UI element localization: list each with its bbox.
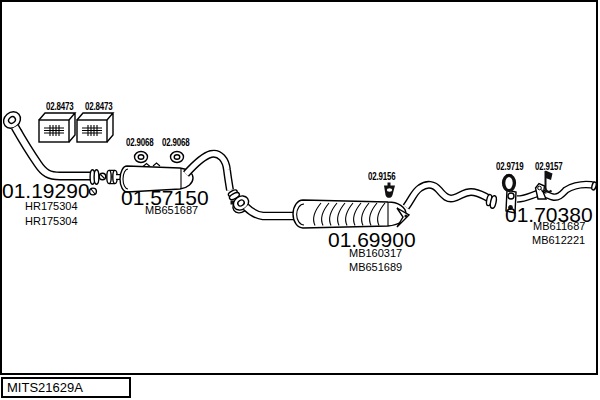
exhaust-system-diagram (0, 0, 600, 400)
flange-joint-drawing (90, 170, 124, 195)
gasket-ring-icon (135, 152, 148, 163)
part-ref-label: HR175304 (25, 201, 78, 212)
fitting-label: 02.8473 (85, 101, 113, 112)
part-ref-label: HR175304 (25, 216, 78, 227)
mount-block-icon (39, 113, 75, 142)
rubber-hanger-icon (384, 183, 395, 198)
fitting-label: 02.9157 (535, 161, 563, 172)
part-ref-label: MB612221 (532, 235, 585, 246)
rubber-grommet-icon (504, 175, 515, 190)
catalog-code: MITS21629A (3, 380, 83, 395)
fitting-label: 02.9719 (496, 161, 524, 172)
part-number-label: 01.19290 (2, 180, 90, 201)
catalog-code-box: MITS21629A (1, 377, 131, 398)
mount-block-icon (77, 113, 113, 142)
fitting-label: 02.9068 (162, 137, 190, 148)
fitting-label: 02.8473 (46, 101, 74, 112)
part-ref-label: MB611687 (533, 221, 585, 232)
part-ref-label: MB651689 (349, 262, 402, 273)
fitting-label: 02.9068 (126, 137, 154, 148)
diagram-canvas: 02.8473 02.8473 02.9068 02.9068 02.9156 … (0, 0, 600, 400)
part-ref-label: MB651687 (145, 205, 198, 216)
gasket-ring-icon (171, 152, 184, 163)
main-muffler-drawing (246, 185, 497, 228)
part-ref-label: MB160317 (349, 248, 402, 259)
fitting-label: 02.9156 (368, 171, 396, 182)
